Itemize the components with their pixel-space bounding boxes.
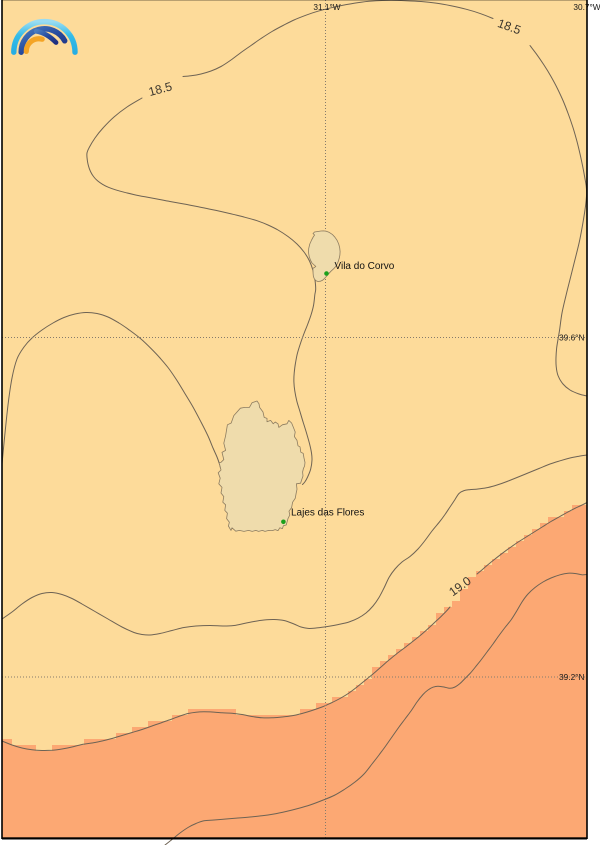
svg-text:39.6°N: 39.6°N xyxy=(559,332,584,342)
svg-text:39.2°N: 39.2°N xyxy=(559,672,584,682)
svg-text:Lajes das Flores: Lajes das Flores xyxy=(291,507,364,518)
svg-text:Vila do Corvo: Vila do Corvo xyxy=(335,261,395,272)
svg-text:31.1°W: 31.1°W xyxy=(313,2,340,12)
